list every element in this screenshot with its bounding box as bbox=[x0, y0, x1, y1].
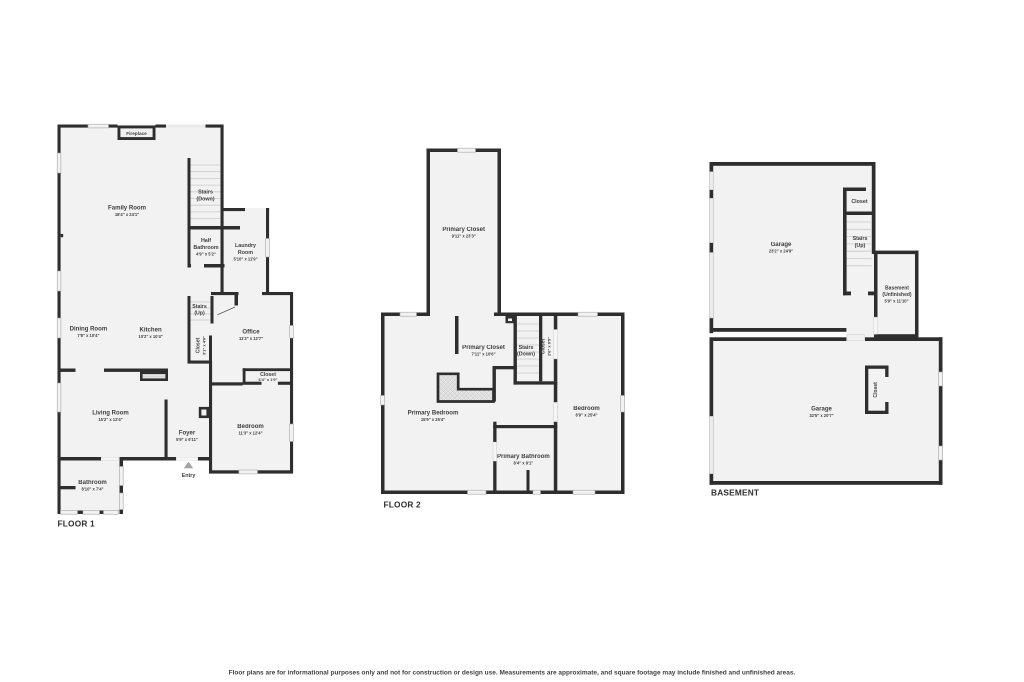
svg-text:11'3" x 12'4": 11'3" x 12'4" bbox=[238, 431, 262, 436]
svg-text:18'4" x 24'1": 18'4" x 24'1" bbox=[115, 212, 139, 217]
svg-text:7'8" x 10'4": 7'8" x 10'4" bbox=[77, 333, 99, 338]
svg-text:Foyer: Foyer bbox=[179, 431, 196, 437]
svg-text:Primary Bedroom: Primary Bedroom bbox=[408, 411, 459, 417]
svg-text:Stairs: Stairs bbox=[853, 236, 868, 242]
svg-text:Half: Half bbox=[201, 238, 211, 244]
svg-text:Floor plans are for informatio: Floor plans are for informational purpos… bbox=[229, 670, 796, 677]
svg-text:Bathroom: Bathroom bbox=[78, 480, 107, 486]
svg-text:Fireplace: Fireplace bbox=[126, 131, 147, 136]
svg-text:Bathroom: Bathroom bbox=[193, 245, 218, 251]
svg-text:Bedroom: Bedroom bbox=[573, 406, 600, 412]
svg-text:5'9" x 6'11": 5'9" x 6'11" bbox=[176, 437, 198, 442]
svg-text:15'9" x 25'4": 15'9" x 25'4" bbox=[421, 417, 445, 422]
svg-text:Basement: Basement bbox=[885, 285, 909, 291]
svg-text:(Up): (Up) bbox=[855, 243, 866, 249]
svg-text:Primary Bathroom: Primary Bathroom bbox=[497, 454, 550, 460]
svg-text:Closet: Closet bbox=[873, 382, 879, 398]
svg-text:8'9" x 25'4": 8'9" x 25'4" bbox=[575, 413, 597, 418]
svg-text:11'2" x 12'7": 11'2" x 12'7" bbox=[239, 336, 263, 341]
svg-text:6'4" x 1'9": 6'4" x 1'9" bbox=[258, 377, 277, 382]
svg-text:3'1" x 4'9": 3'1" x 4'9" bbox=[202, 336, 207, 355]
svg-text:8'10" x 7'4": 8'10" x 7'4" bbox=[81, 487, 103, 492]
svg-text:(Unfinished): (Unfinished) bbox=[882, 292, 911, 298]
svg-text:8'4" x 9'1": 8'4" x 9'1" bbox=[514, 461, 534, 466]
svg-text:9'11" x 23'3": 9'11" x 23'3" bbox=[452, 234, 476, 239]
svg-text:Stairs: Stairs bbox=[198, 190, 213, 196]
svg-text:(Up): (Up) bbox=[194, 311, 205, 317]
svg-text:10'2" x 10'4": 10'2" x 10'4" bbox=[138, 334, 162, 339]
svg-text:Entry: Entry bbox=[182, 473, 196, 479]
svg-text:Bedroom: Bedroom bbox=[237, 424, 264, 430]
svg-text:Garage: Garage bbox=[771, 242, 792, 248]
svg-text:15'2" x 12'4": 15'2" x 12'4" bbox=[98, 417, 122, 422]
svg-text:FLOOR 1: FLOOR 1 bbox=[58, 519, 96, 529]
svg-text:4'9" x 5'2": 4'9" x 5'2" bbox=[196, 252, 216, 257]
svg-text:(Down): (Down) bbox=[517, 352, 535, 358]
svg-text:Garage: Garage bbox=[811, 407, 832, 413]
svg-text:Primary Closet: Primary Closet bbox=[442, 227, 485, 233]
svg-text:Room: Room bbox=[238, 250, 253, 256]
svg-text:Stairs: Stairs bbox=[192, 304, 207, 310]
svg-text:BASEMENT: BASEMENT bbox=[711, 488, 759, 498]
svg-text:Office: Office bbox=[242, 330, 260, 336]
svg-text:2'6" x 9'5": 2'6" x 9'5" bbox=[546, 337, 551, 356]
svg-text:5'10" x 11'9": 5'10" x 11'9" bbox=[233, 257, 257, 262]
svg-text:Stairs: Stairs bbox=[519, 345, 534, 351]
svg-text:Closet: Closet bbox=[851, 199, 868, 205]
svg-text:Kitchen: Kitchen bbox=[140, 328, 162, 334]
svg-text:Primary Closet: Primary Closet bbox=[462, 345, 505, 351]
svg-text:Living Room: Living Room bbox=[92, 411, 129, 417]
svg-text:32'5" x 20'7": 32'5" x 20'7" bbox=[809, 413, 833, 418]
svg-text:Family Room: Family Room bbox=[108, 206, 146, 212]
svg-text:(Down): (Down) bbox=[196, 197, 214, 203]
svg-text:7'11" x 10'6": 7'11" x 10'6" bbox=[471, 352, 495, 357]
svg-text:5'9" x 11'10": 5'9" x 11'10" bbox=[884, 298, 908, 303]
svg-text:Dining Room: Dining Room bbox=[70, 327, 108, 333]
svg-text:23'2" x 24'9": 23'2" x 24'9" bbox=[769, 249, 793, 254]
svg-text:FLOOR 2: FLOOR 2 bbox=[384, 500, 422, 510]
svg-text:Laundry: Laundry bbox=[235, 243, 256, 249]
